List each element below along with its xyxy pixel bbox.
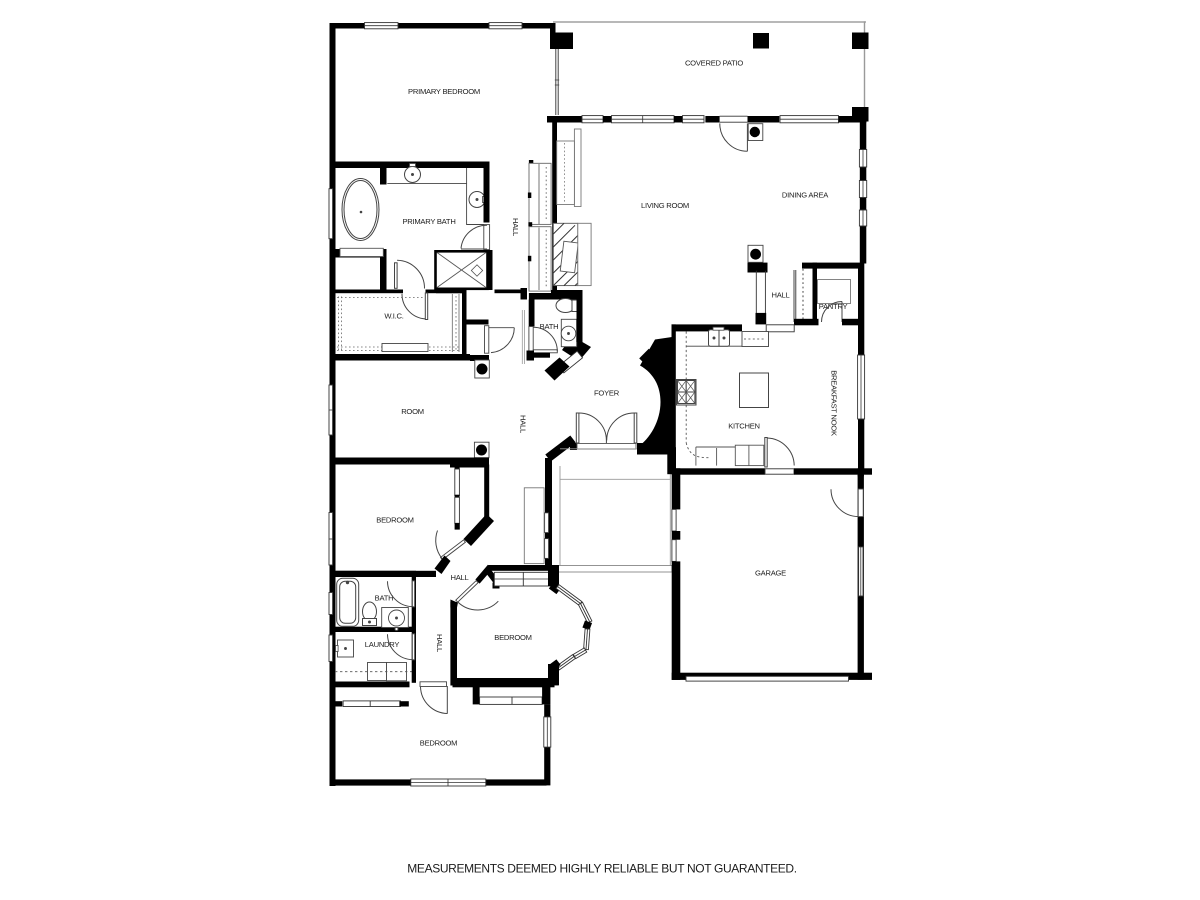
- svg-text:BATH: BATH: [540, 322, 559, 331]
- svg-text:GARAGE: GARAGE: [755, 569, 786, 578]
- svg-text:BATH: BATH: [375, 594, 394, 603]
- svg-text:W.I.C.: W.I.C.: [384, 312, 403, 321]
- svg-text:HALL: HALL: [519, 415, 528, 433]
- svg-text:BEDROOM: BEDROOM: [420, 739, 458, 748]
- svg-text:ROOM: ROOM: [401, 407, 424, 416]
- svg-text:BEDROOM: BEDROOM: [494, 633, 532, 642]
- svg-text:BEDROOM: BEDROOM: [376, 516, 414, 525]
- svg-text:MEASUREMENTS DEEMED HIGHLY REL: MEASUREMENTS DEEMED HIGHLY RELIABLE BUT …: [407, 862, 796, 876]
- svg-text:DINING AREA: DINING AREA: [782, 191, 829, 200]
- svg-text:FOYER: FOYER: [594, 389, 620, 398]
- svg-text:HALL: HALL: [435, 634, 444, 652]
- svg-text:COVERED PATIO: COVERED PATIO: [685, 59, 743, 68]
- svg-text:PRIMARY BATH: PRIMARY BATH: [402, 217, 455, 226]
- svg-text:HALL: HALL: [451, 573, 469, 582]
- svg-text:HALL: HALL: [772, 291, 790, 300]
- svg-text:HALL: HALL: [511, 218, 520, 236]
- svg-text:PRIMARY BEDROOM: PRIMARY BEDROOM: [408, 87, 480, 96]
- svg-text:BREAKFAST NOOK: BREAKFAST NOOK: [830, 370, 839, 436]
- svg-text:KITCHEN: KITCHEN: [728, 422, 760, 431]
- svg-text:LAUNDRY: LAUNDRY: [365, 640, 400, 649]
- svg-text:LIVING ROOM: LIVING ROOM: [641, 201, 689, 210]
